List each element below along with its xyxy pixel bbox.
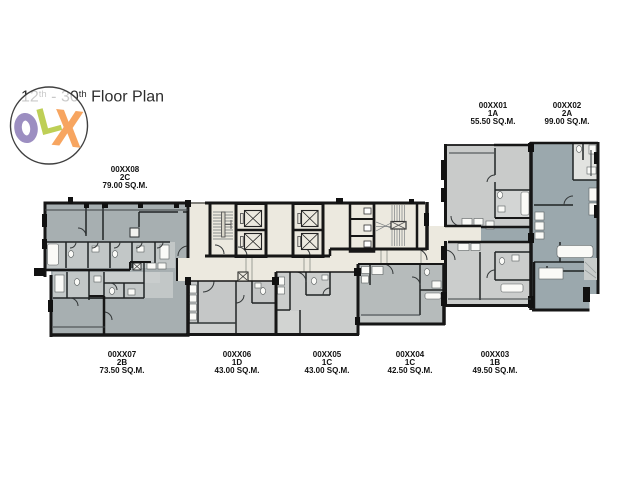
svg-text:73.50 SQ.M.: 73.50 SQ.M. (100, 366, 145, 375)
svg-text:43.00 SQ.M.: 43.00 SQ.M. (215, 366, 260, 375)
svg-text:49.50 SQ.M.: 49.50 SQ.M. (473, 366, 518, 375)
svg-text:55.50 SQ.M.: 55.50 SQ.M. (471, 117, 516, 126)
svg-text:99.00 SQ.M.: 99.00 SQ.M. (545, 117, 590, 126)
svg-text:43.00 SQ.M.: 43.00 SQ.M. (305, 366, 350, 375)
svg-text:42.50 SQ.M.: 42.50 SQ.M. (388, 366, 433, 375)
svg-text:79.00 SQ.M.: 79.00 SQ.M. (103, 181, 148, 190)
